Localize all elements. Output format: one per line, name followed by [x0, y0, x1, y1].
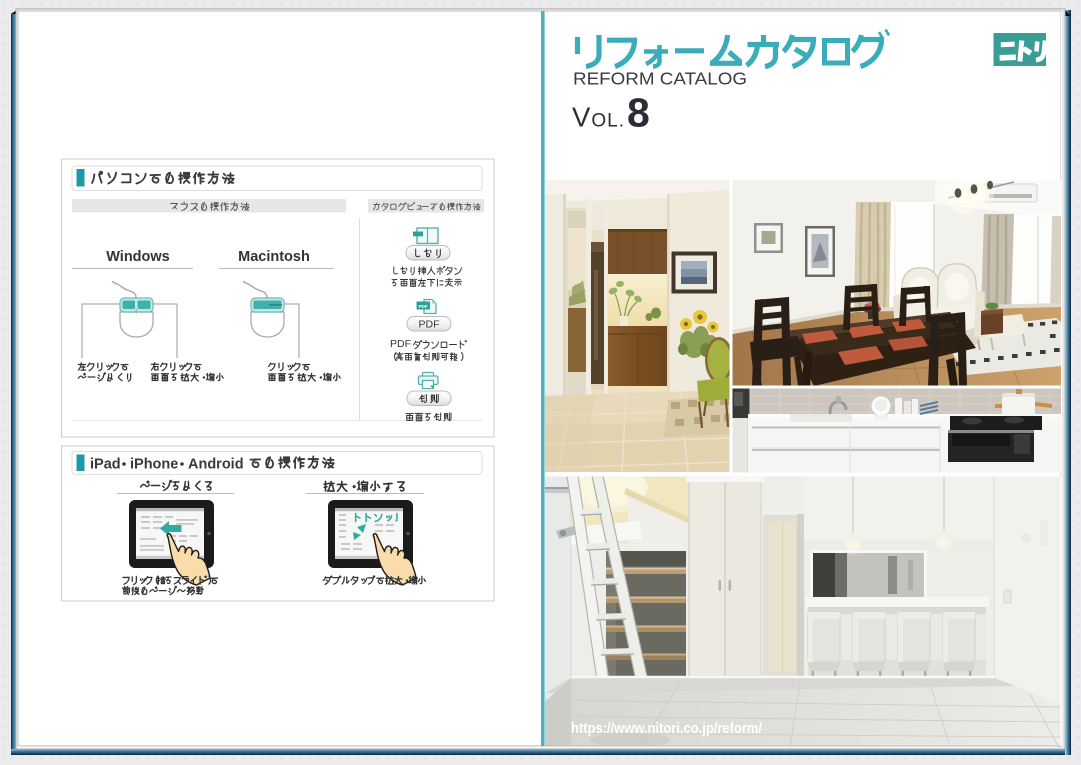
svg-text:REFORM CATALOG: REFORM CATALOG: [573, 69, 747, 89]
svg-text:PDF: PDF: [419, 304, 428, 309]
svg-text:Windows: Windows: [106, 249, 170, 265]
svg-text:PDF: PDF: [390, 338, 411, 350]
svg-text:https://www.nitori.co.jp/refor: https://www.nitori.co.jp/reform/: [571, 720, 763, 737]
svg-text:iPhone: iPhone: [130, 457, 178, 473]
svg-text:iPad: iPad: [90, 457, 121, 473]
svg-text:Macintosh: Macintosh: [238, 249, 310, 265]
svg-text:Android: Android: [188, 457, 244, 473]
svg-text:PDF: PDF: [419, 319, 440, 331]
